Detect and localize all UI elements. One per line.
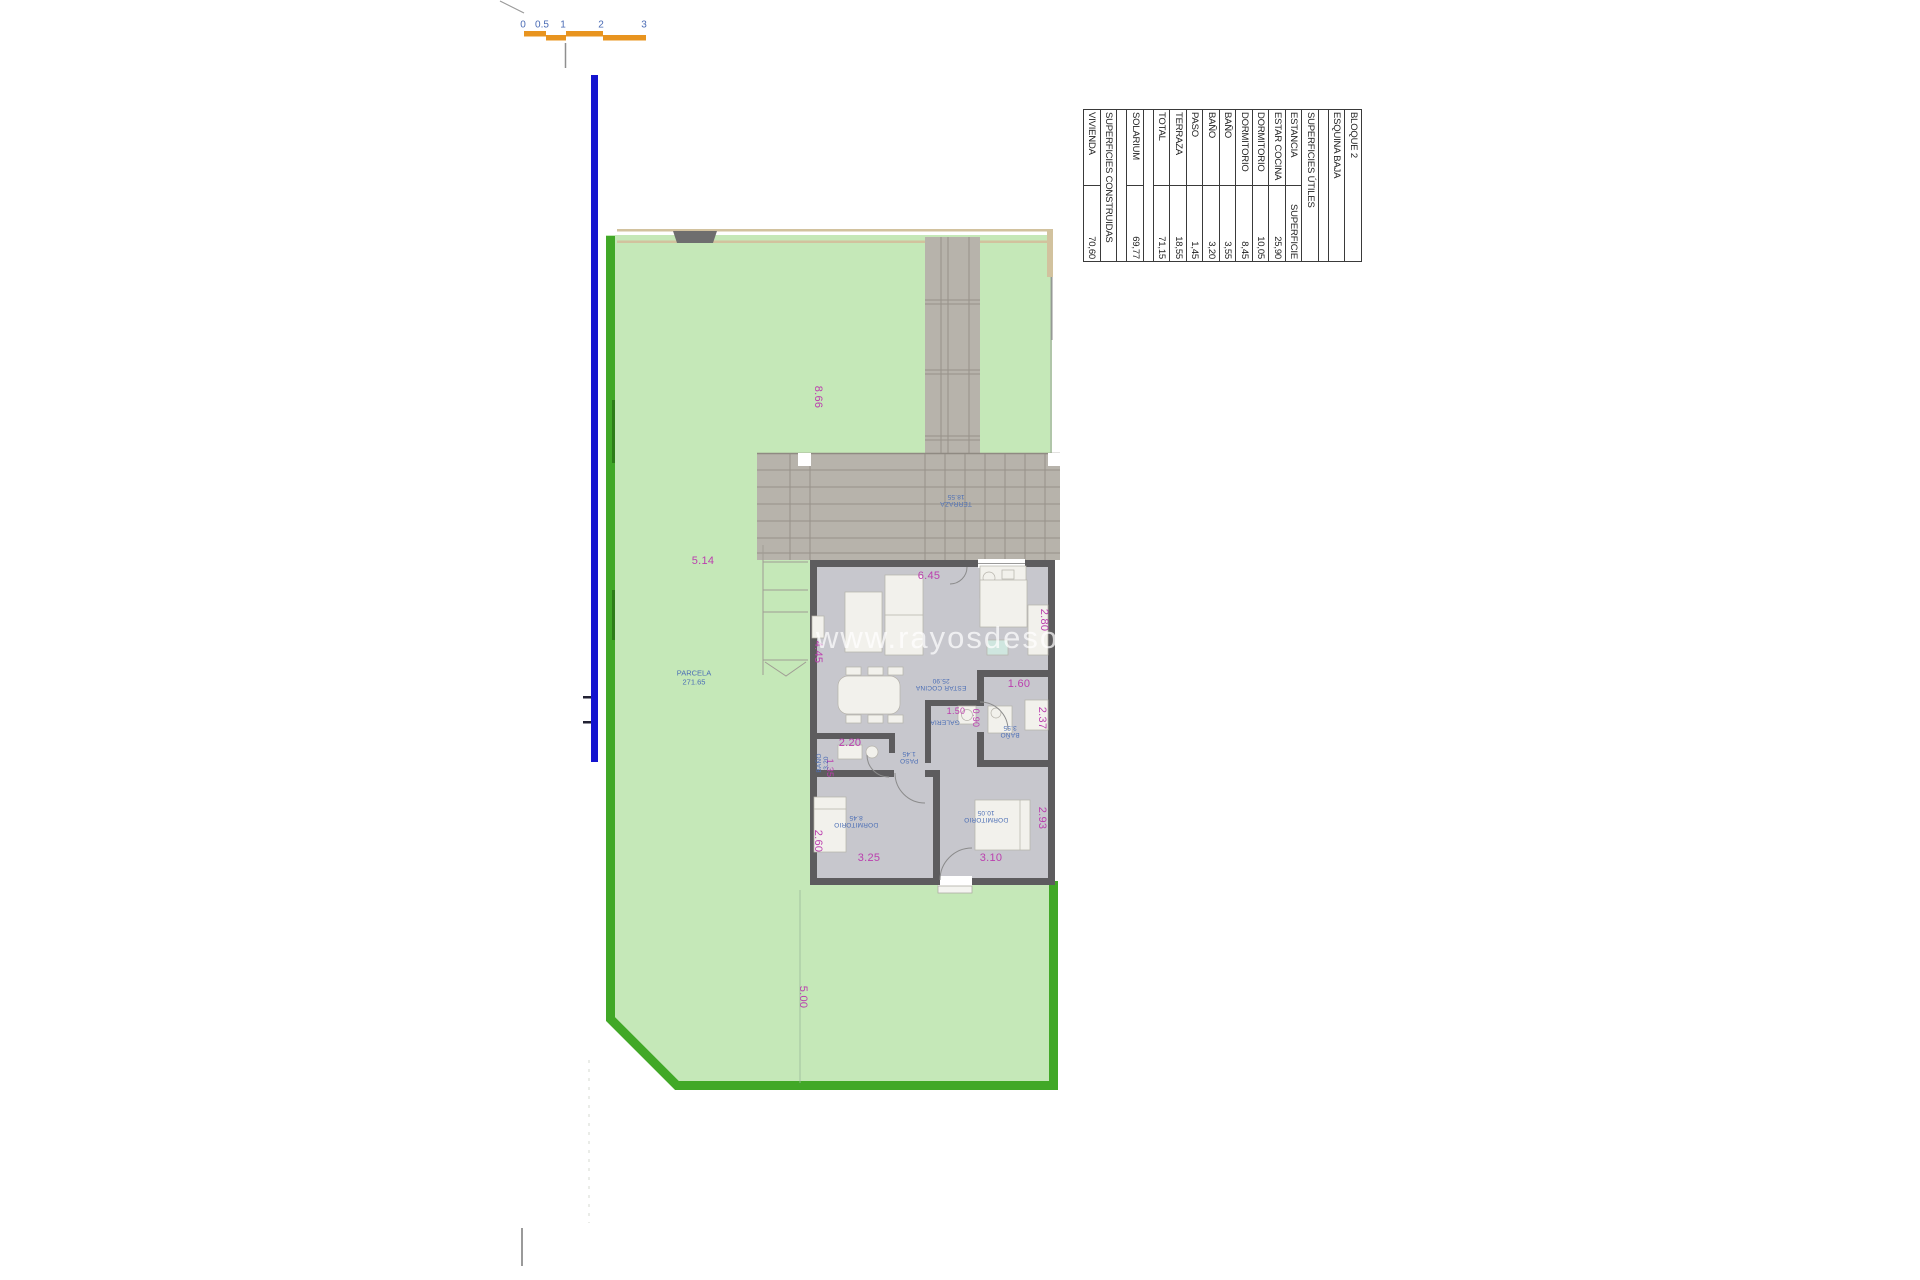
room-area: 25.90 bbox=[916, 677, 967, 684]
table-row: BLOQUE 2 bbox=[1345, 110, 1362, 262]
table-row: BAÑO3,20 bbox=[1203, 110, 1220, 262]
scale-bar bbox=[524, 31, 646, 41]
table-cell-label: ESTAR COCINA bbox=[1269, 110, 1286, 186]
table-cell-value: 70,60 bbox=[1084, 186, 1101, 262]
table-row: ESTAR COCINA25,90 bbox=[1269, 110, 1286, 262]
surfaces-table-wrap: BLOQUE 2ESQUINA BAJASUPERFICIES ÚTILESES… bbox=[1083, 109, 1362, 262]
dim-5-00: 5.00 bbox=[797, 986, 809, 1009]
dim-8-66: 8.66 bbox=[812, 386, 824, 409]
dim-2-20: 2.20 bbox=[839, 737, 862, 749]
table-cell-label: BAÑO bbox=[1203, 110, 1220, 186]
entrance-step bbox=[938, 886, 972, 893]
table-cell-label: DORMITORIO bbox=[1236, 110, 1253, 186]
table-cell-label: TOTAL bbox=[1153, 110, 1170, 186]
area-table: BLOQUE 2ESQUINA BAJASUPERFICIES ÚTILESES… bbox=[1083, 109, 1362, 262]
dim-2-60: 2.60 bbox=[812, 830, 824, 853]
dining-table bbox=[838, 676, 900, 714]
table-cell-value: 3,55 bbox=[1219, 186, 1236, 262]
parcel-label: PARCELA 271.65 bbox=[677, 670, 711, 687]
table-row bbox=[1117, 110, 1127, 262]
table-row bbox=[1318, 110, 1328, 262]
table-cell-value: 3,20 bbox=[1203, 186, 1220, 262]
room-area: 1.45 bbox=[900, 750, 918, 757]
table-cell-label: BAÑO bbox=[1219, 110, 1236, 186]
table-cell-label: ESTANCIA bbox=[1285, 110, 1302, 186]
boundary-block bbox=[673, 231, 717, 243]
room-label-galeria: GALERIA bbox=[930, 719, 960, 726]
surfaces-table-rotated: BLOQUE 2ESQUINA BAJASUPERFICIES ÚTILESES… bbox=[1083, 109, 1362, 262]
drawing-sheet: 0 0.5 1 2 3 8.66 5.14 5.00 6.45 2.80 4.4… bbox=[0, 0, 1920, 1280]
room-label-dormitorio-845: DORMITORIO 8.45 bbox=[834, 814, 878, 828]
table-row: DORMITORIO8,45 bbox=[1236, 110, 1253, 262]
room-name: GALERIA bbox=[930, 719, 960, 726]
table-row: SOLARIUM69,77 bbox=[1127, 110, 1144, 262]
walkway bbox=[925, 237, 980, 453]
table-cell-label bbox=[1318, 110, 1328, 262]
dim-5-14: 5.14 bbox=[692, 555, 715, 567]
dim-1-50: 1.50 bbox=[947, 706, 966, 716]
table-cell-label: VIVIENDA bbox=[1084, 110, 1101, 186]
room-area: 8.45 bbox=[834, 814, 878, 821]
table-cell-label: TERRAZA bbox=[1170, 110, 1187, 186]
room-label-paso: PASO 1.45 bbox=[900, 750, 918, 764]
table-row: ESQUINA BAJA bbox=[1328, 110, 1345, 262]
scale-label-3: 3 bbox=[641, 20, 647, 31]
room-name: DORMITORIO bbox=[834, 821, 878, 828]
room-name: DORMITORIO bbox=[964, 816, 1008, 823]
entrance-opening bbox=[938, 876, 972, 886]
room-label-dormitorio-1005: DORMITORIO 10.05 bbox=[964, 809, 1008, 823]
scale-label-05: 0.5 bbox=[535, 20, 549, 31]
table-row: SUPERFICIES CONSTRUIDAS bbox=[1100, 110, 1117, 262]
table-row: BAÑO3,55 bbox=[1219, 110, 1236, 262]
table-cell-label: ESQUINA BAJA bbox=[1328, 110, 1345, 262]
dim-1-60: 1.60 bbox=[1008, 678, 1031, 690]
table-cell-label: SOLARIUM bbox=[1127, 110, 1144, 186]
parcel-area-value: 271.65 bbox=[677, 678, 711, 687]
table-cell-label bbox=[1143, 110, 1153, 262]
room-area: 3.20 bbox=[823, 753, 830, 772]
room-name: BAÑO bbox=[1000, 731, 1019, 738]
room-area: 3.55 bbox=[1000, 724, 1019, 731]
scale-label-0: 0 bbox=[520, 20, 526, 31]
terrace bbox=[757, 453, 1060, 560]
table-cell-value: 10,05 bbox=[1252, 186, 1269, 262]
scale-label-2: 2 bbox=[598, 20, 604, 31]
table-row: PASO1,45 bbox=[1186, 110, 1203, 262]
table-cell-value: 25,90 bbox=[1269, 186, 1286, 262]
room-label-banyo-320: BAÑO 3.20 bbox=[816, 753, 830, 772]
table-row: TERRAZA18,55 bbox=[1170, 110, 1187, 262]
frame-lines bbox=[500, 1, 589, 1266]
toilet-icon bbox=[866, 746, 878, 758]
table-cell-label: SUPERFICIES ÚTILES bbox=[1302, 110, 1319, 262]
table-cell-value: 8,45 bbox=[1236, 186, 1253, 262]
table-cell-value: SUPERFICIE bbox=[1285, 186, 1302, 262]
table-row bbox=[1143, 110, 1153, 262]
dim-2-93: 2.93 bbox=[1036, 807, 1048, 830]
dim-0-90: 0.90 bbox=[971, 709, 981, 728]
scale-label-1: 1 bbox=[560, 20, 566, 31]
table-cell-value: 1,45 bbox=[1186, 186, 1203, 262]
room-label-terraza: TERRAZA 18.55 bbox=[940, 493, 972, 507]
room-name: BAÑO bbox=[816, 753, 823, 772]
room-label-banyo-355: BAÑO 3.55 bbox=[1000, 724, 1019, 738]
dim-2-37: 2.37 bbox=[1036, 707, 1048, 730]
dim-6-45: 6.45 bbox=[918, 570, 941, 582]
dim-3-25: 3.25 bbox=[858, 852, 881, 864]
table-cell-label: BLOQUE 2 bbox=[1345, 110, 1362, 262]
watermark: www.rayosdesol.c bbox=[816, 620, 1096, 656]
blue-boundary-line bbox=[583, 75, 598, 762]
table-cell-value: 18,55 bbox=[1170, 186, 1187, 262]
table-cell-label: SUPERFICIES CONSTRUIDAS bbox=[1100, 110, 1117, 262]
table-row: SUPERFICIES ÚTILES bbox=[1302, 110, 1319, 262]
table-row: ESTANCIASUPERFICIE bbox=[1285, 110, 1302, 262]
room-name: ESTAR COCINA bbox=[916, 684, 967, 691]
table-row: VIVIENDA70,60 bbox=[1084, 110, 1101, 262]
bed bbox=[975, 800, 1030, 850]
table-cell-label: DORMITORIO bbox=[1252, 110, 1269, 186]
table-cell-value: 69,77 bbox=[1127, 186, 1144, 262]
table-cell-value: 71,15 bbox=[1153, 186, 1170, 262]
table-row: TOTAL71,15 bbox=[1153, 110, 1170, 262]
room-area: 10.05 bbox=[964, 809, 1008, 816]
dim-3-10: 3.10 bbox=[980, 852, 1003, 864]
room-name: TERRAZA bbox=[940, 500, 972, 507]
room-label-estar-cocina: ESTAR COCINA 25.90 bbox=[916, 677, 967, 691]
room-area: 18.55 bbox=[940, 493, 972, 500]
table-cell-label: PASO bbox=[1186, 110, 1203, 186]
table-row: DORMITORIO10,05 bbox=[1252, 110, 1269, 262]
room-name: PASO bbox=[900, 757, 918, 764]
table-cell-label bbox=[1117, 110, 1127, 262]
